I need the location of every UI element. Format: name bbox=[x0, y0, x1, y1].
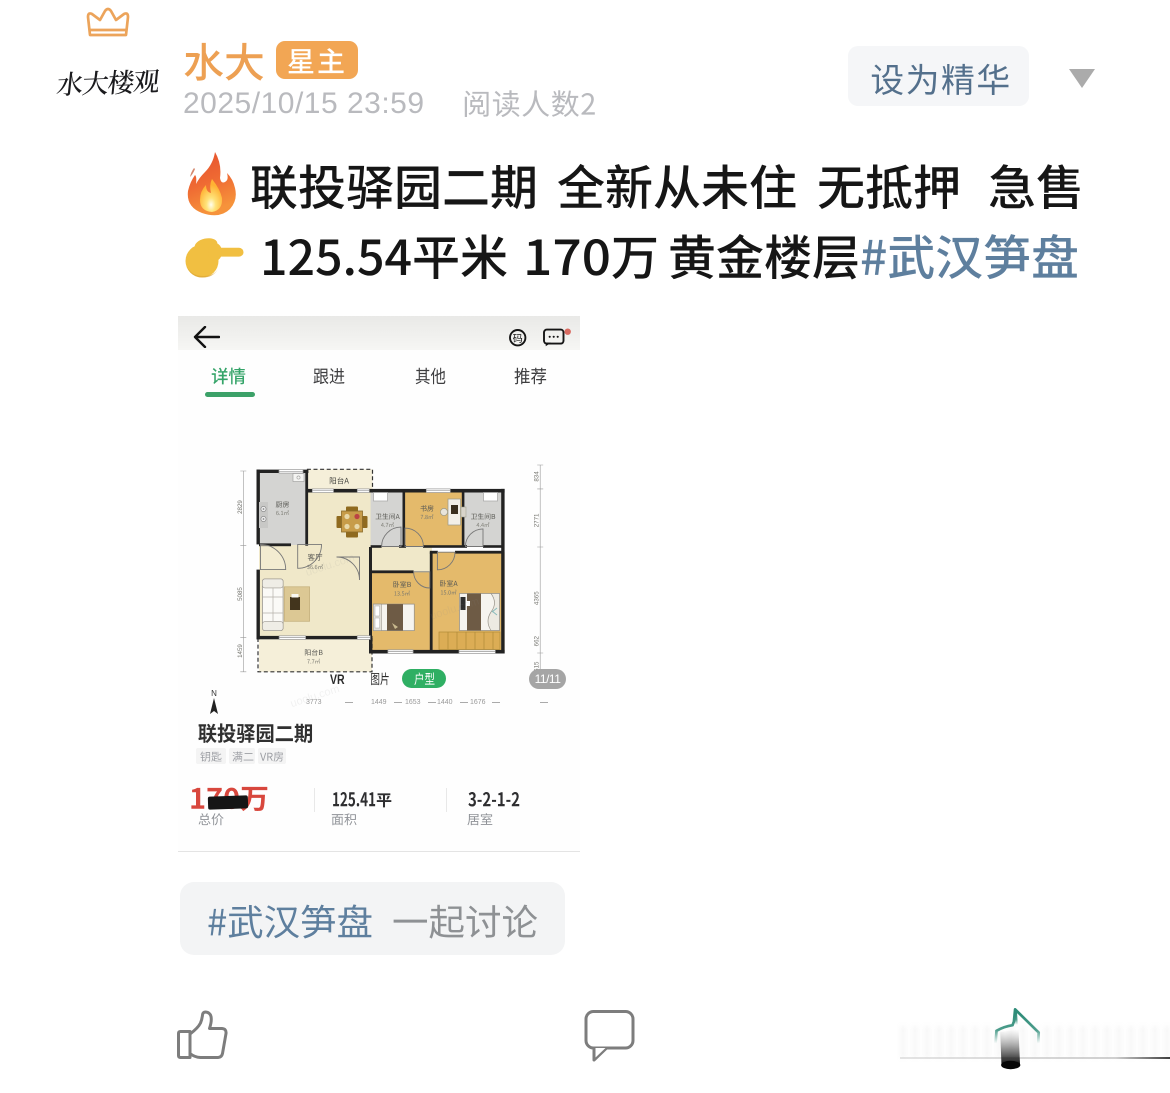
svg-text:2829: 2829 bbox=[237, 500, 244, 514]
svg-text:662: 662 bbox=[534, 635, 541, 646]
svg-text:834: 834 bbox=[534, 471, 541, 482]
svg-text:N: N bbox=[211, 689, 217, 698]
svg-text:2771: 2771 bbox=[534, 513, 541, 527]
svg-text:1459: 1459 bbox=[237, 644, 244, 658]
svg-text:5085: 5085 bbox=[237, 587, 244, 601]
svg-text:4365: 4365 bbox=[534, 591, 541, 605]
